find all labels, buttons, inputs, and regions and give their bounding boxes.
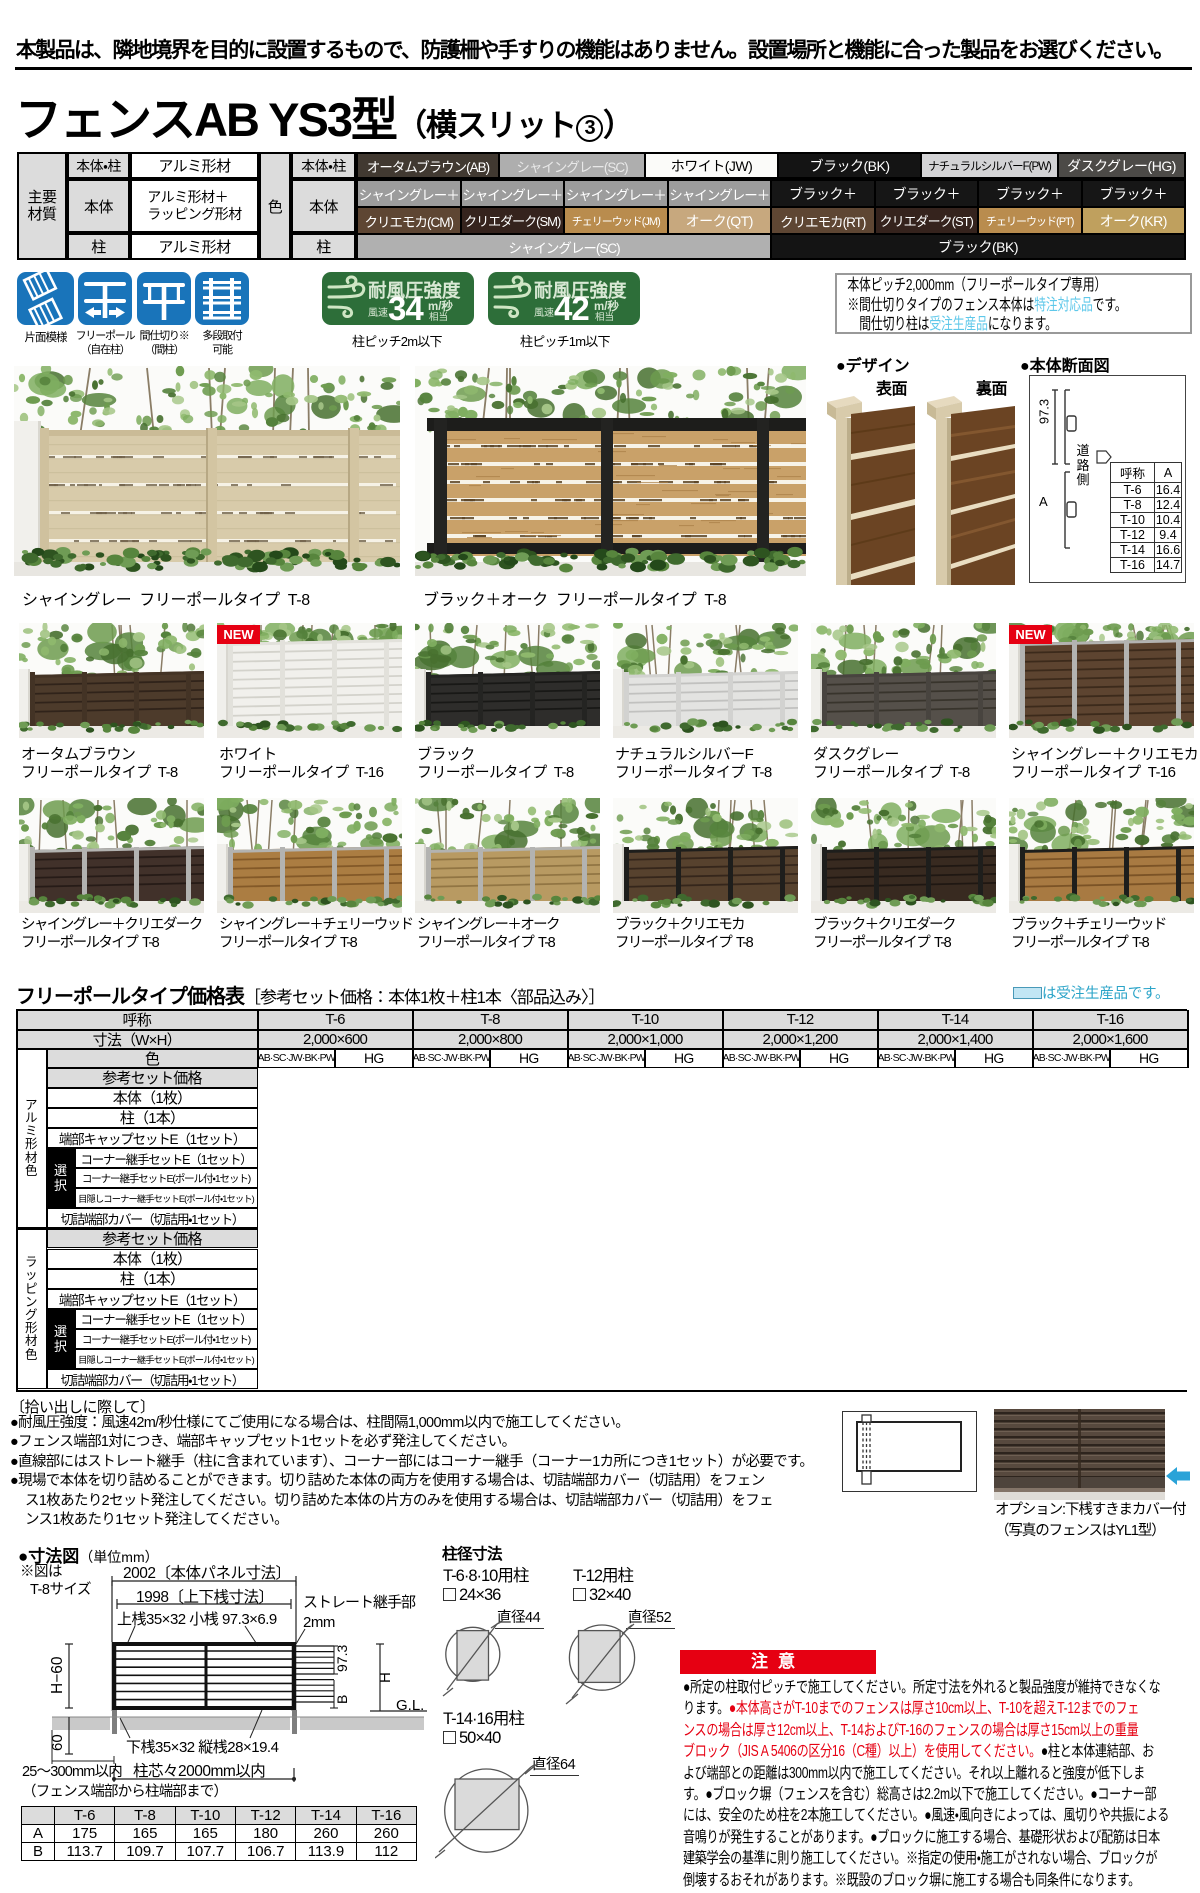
svg-text:H−60: H−60 [49,1656,66,1694]
svg-text:2002〔本体パネル寸法〕: 2002〔本体パネル寸法〕 [123,1564,290,1582]
svg-text:m/秒: m/秒 [594,299,619,313]
svg-text:m/秒: m/秒 [428,299,453,313]
svg-text:相当: 相当 [595,311,614,323]
svg-text:風速: 風速 [534,307,554,319]
svg-text:25～300mm以内: 25～300mm以内 [22,1763,122,1780]
svg-text:相当: 相当 [429,311,448,323]
svg-text:H: H [377,1672,394,1683]
svg-text:2mm: 2mm [303,1614,335,1631]
svg-text:柱芯々2000mm以内: 柱芯々2000mm以内 [133,1762,265,1780]
svg-text:風速: 風速 [368,307,388,319]
svg-text:1998〔上下桟寸法〕: 1998〔上下桟寸法〕 [136,1588,273,1606]
svg-text:34: 34 [388,290,424,325]
svg-text:下桟35×32 縦桟28×19.4: 下桟35×32 縦桟28×19.4 [126,1739,279,1756]
svg-text:B: B [334,1695,350,1704]
svg-text:97.3: 97.3 [334,1645,350,1672]
svg-text:ストレート継手部: ストレート継手部 [303,1594,416,1611]
svg-text:（フェンス端部から柱端部まで）: （フェンス端部から柱端部まで） [22,1783,227,1800]
svg-text:上桟35×32 小桟 97.3×6.9: 上桟35×32 小桟 97.3×6.9 [117,1611,277,1628]
svg-text:42: 42 [554,290,589,325]
